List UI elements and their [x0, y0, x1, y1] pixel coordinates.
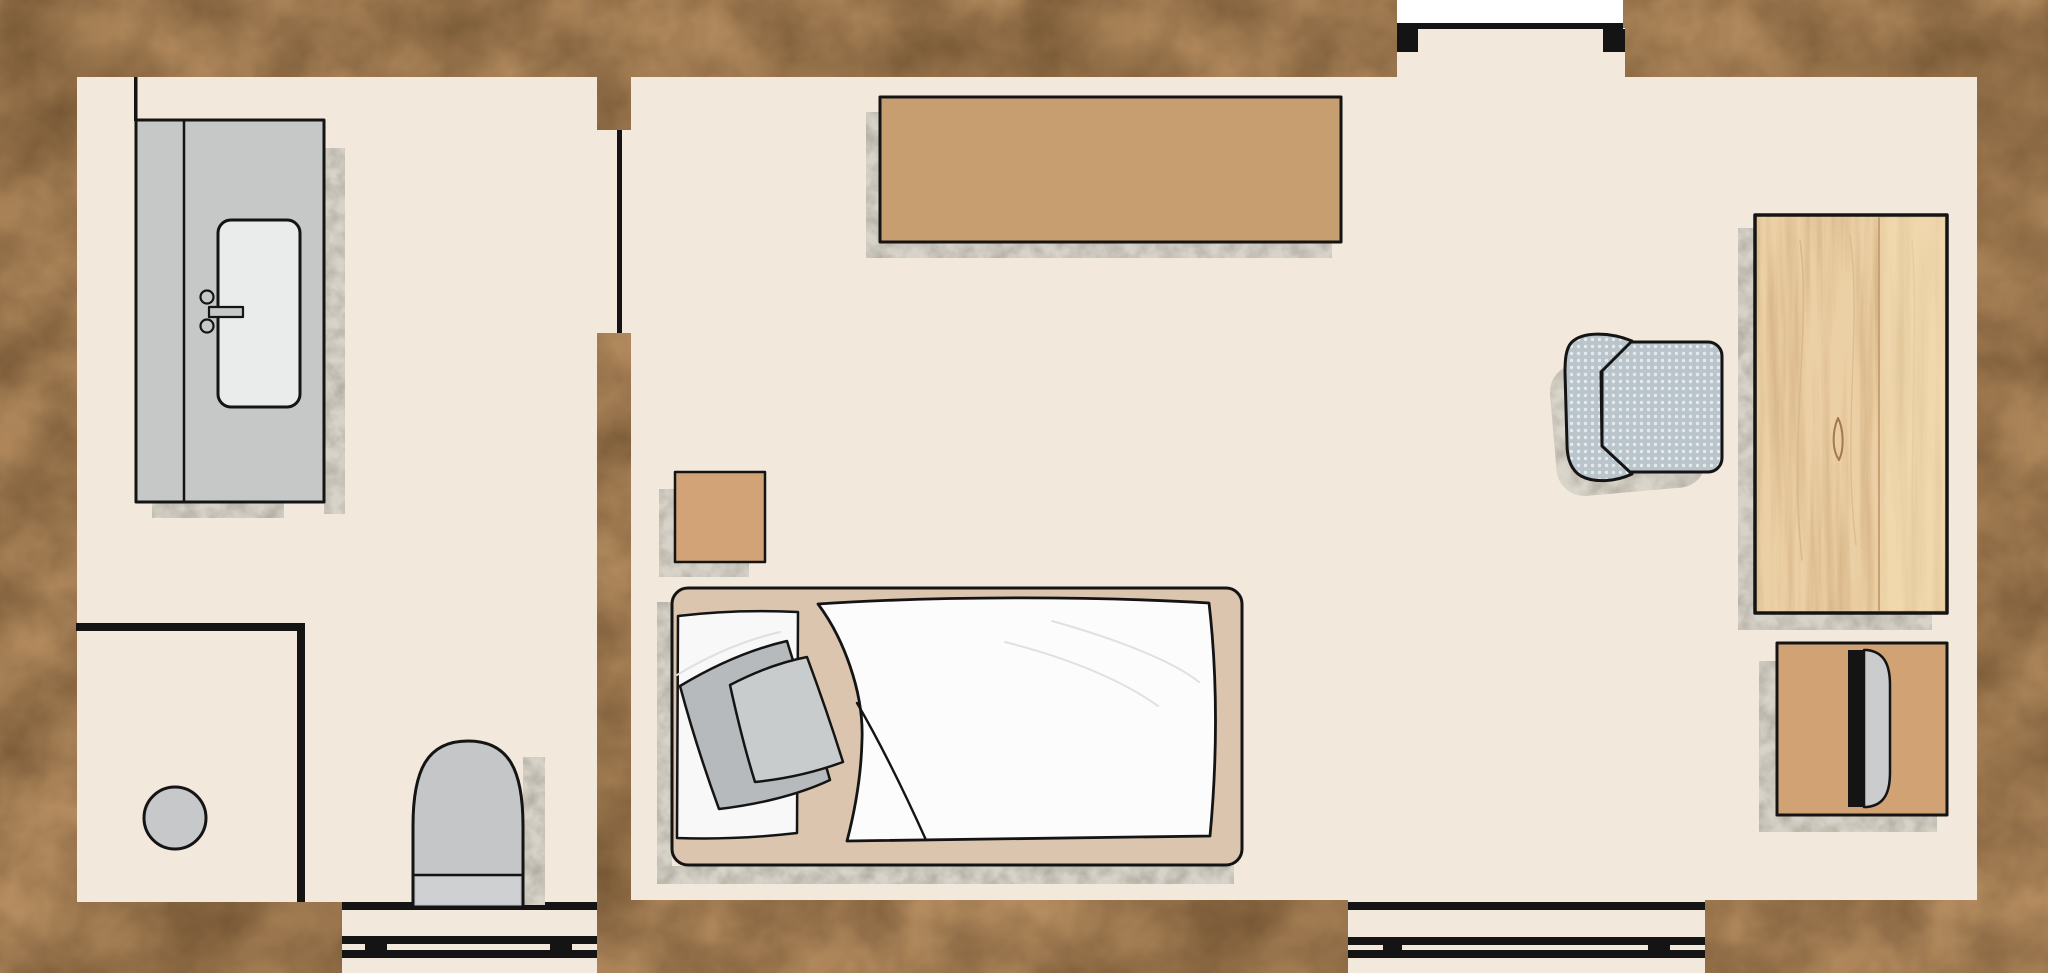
nightstand: [675, 472, 765, 562]
desk-shadow-left: [1738, 228, 1755, 628]
toilet-tank: [416, 877, 520, 904]
bedroom-window-bay-floor: [1348, 900, 1705, 973]
faucet-spout-bar: [209, 307, 243, 317]
entry-door-jamb-left: [1397, 29, 1418, 52]
counter-shadow-right: [324, 148, 345, 514]
toilet-shadow: [523, 757, 545, 905]
entry-doorway-recess-floor: [1397, 28, 1625, 77]
divider-door-leaf-line: [617, 130, 622, 333]
bathroom-wall-nib-line: [134, 77, 138, 121]
divider-doorway-floor: [597, 130, 631, 333]
bedroom-window-wall-line: [1348, 902, 1705, 910]
closet-partition-vertical: [297, 623, 305, 902]
faucet-handle-bottom: [201, 320, 214, 333]
bed-shadow-bottom: [657, 866, 1234, 884]
entry-door-slab: [1397, 0, 1623, 23]
office-chair-seat: [1602, 342, 1722, 472]
floor-plan-stage: [0, 0, 2048, 973]
counter-shadow-bottom: [152, 503, 284, 518]
dresser-shadow-bottom: [1759, 815, 1937, 832]
bathroom-window-mullion-left: [365, 936, 387, 958]
bedroom-window-mullion-right: [1648, 937, 1670, 958]
entry-door-threshold: [1397, 23, 1623, 29]
bed-shadow-left: [657, 602, 672, 877]
sideboard: [880, 97, 1341, 242]
entry-door-jamb-right: [1603, 29, 1625, 52]
bedroom-window-mullion-left: [1383, 937, 1402, 958]
sideboard-shadow-bottom: [866, 243, 1332, 258]
desk-plank-light: [1880, 218, 1944, 610]
duvet: [818, 598, 1216, 841]
faucet-handle-top: [201, 291, 214, 304]
desk-shadow-bottom: [1738, 613, 1932, 630]
scene-root: [0, 0, 2048, 973]
nightstand-shadow-bottom: [659, 563, 749, 577]
dresser-shadow-left: [1759, 661, 1777, 830]
dresser-door-pull: [1864, 650, 1890, 807]
dresser-groove-bar: [1848, 650, 1864, 807]
closet-partition-horizontal: [76, 623, 305, 631]
sideboard-shadow-left: [866, 112, 880, 257]
floor-plan-canvas: [0, 0, 2048, 973]
bathroom-window-mullion-right: [550, 936, 572, 958]
stool: [144, 787, 206, 849]
